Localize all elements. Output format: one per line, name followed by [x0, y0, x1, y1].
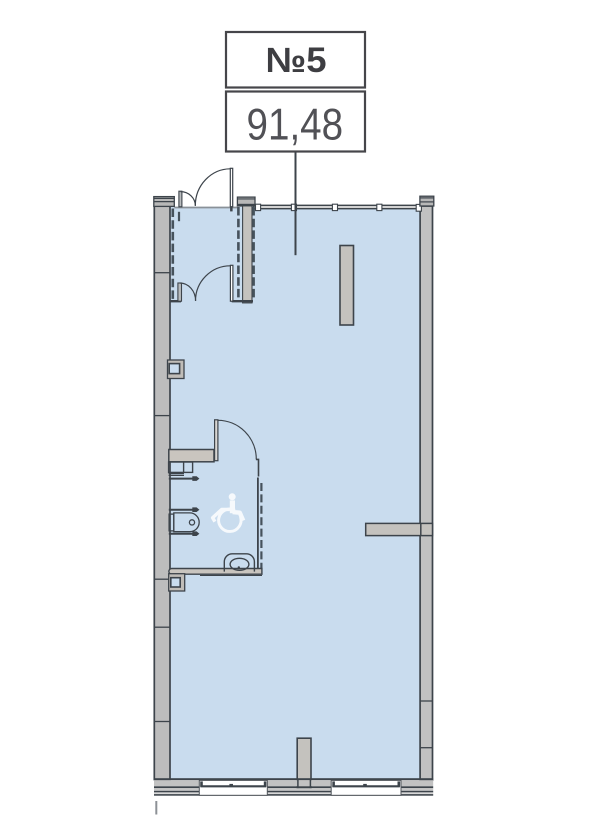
svg-text:91,48: 91,48	[247, 100, 344, 149]
svg-text:№5: №5	[266, 41, 327, 80]
